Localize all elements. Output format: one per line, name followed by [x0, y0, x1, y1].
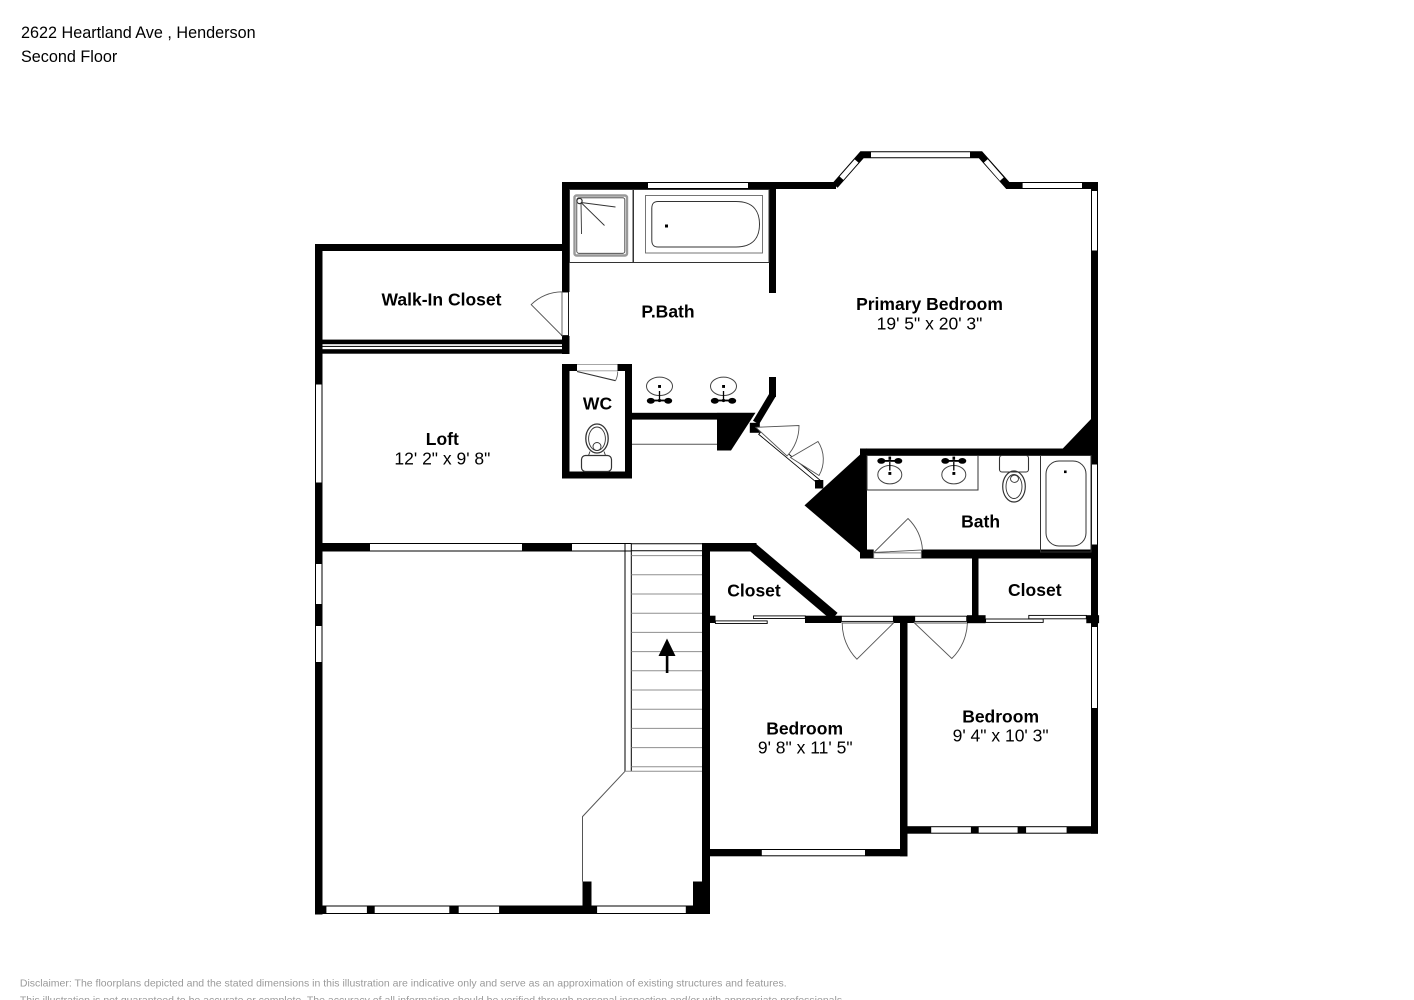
svg-text:Bath: Bath — [961, 512, 1000, 532]
svg-text:12' 2" x 9' 8": 12' 2" x 9' 8" — [394, 449, 490, 469]
svg-text:P.Bath: P.Bath — [641, 302, 694, 322]
svg-text:19' 5" x 20' 3": 19' 5" x 20' 3" — [877, 314, 983, 334]
svg-text:Primary Bedroom: Primary Bedroom — [856, 294, 1003, 314]
svg-text:Closet: Closet — [727, 580, 781, 600]
svg-text:9' 8" x 11' 5": 9' 8" x 11' 5" — [758, 738, 853, 758]
svg-text:Bedroom: Bedroom — [962, 707, 1039, 727]
svg-text:Bedroom: Bedroom — [766, 719, 843, 739]
svg-text:Closet: Closet — [1008, 580, 1062, 600]
svg-text:9' 4" x 10' 3": 9' 4" x 10' 3" — [953, 726, 1049, 746]
svg-text:Loft: Loft — [426, 429, 459, 449]
svg-text:WC: WC — [583, 393, 613, 413]
svg-text:This illustration is not guara: This illustration is not guaranteed to b… — [20, 995, 845, 1000]
svg-text:Second Floor: Second Floor — [21, 48, 118, 66]
svg-text:2622 Heartland Ave , Henderson: 2622 Heartland Ave , Henderson — [21, 24, 256, 42]
svg-text:Walk-In Closet: Walk-In Closet — [382, 289, 502, 309]
svg-text:Disclaimer: The floorplans dep: Disclaimer: The floorplans depicted and … — [20, 977, 787, 989]
